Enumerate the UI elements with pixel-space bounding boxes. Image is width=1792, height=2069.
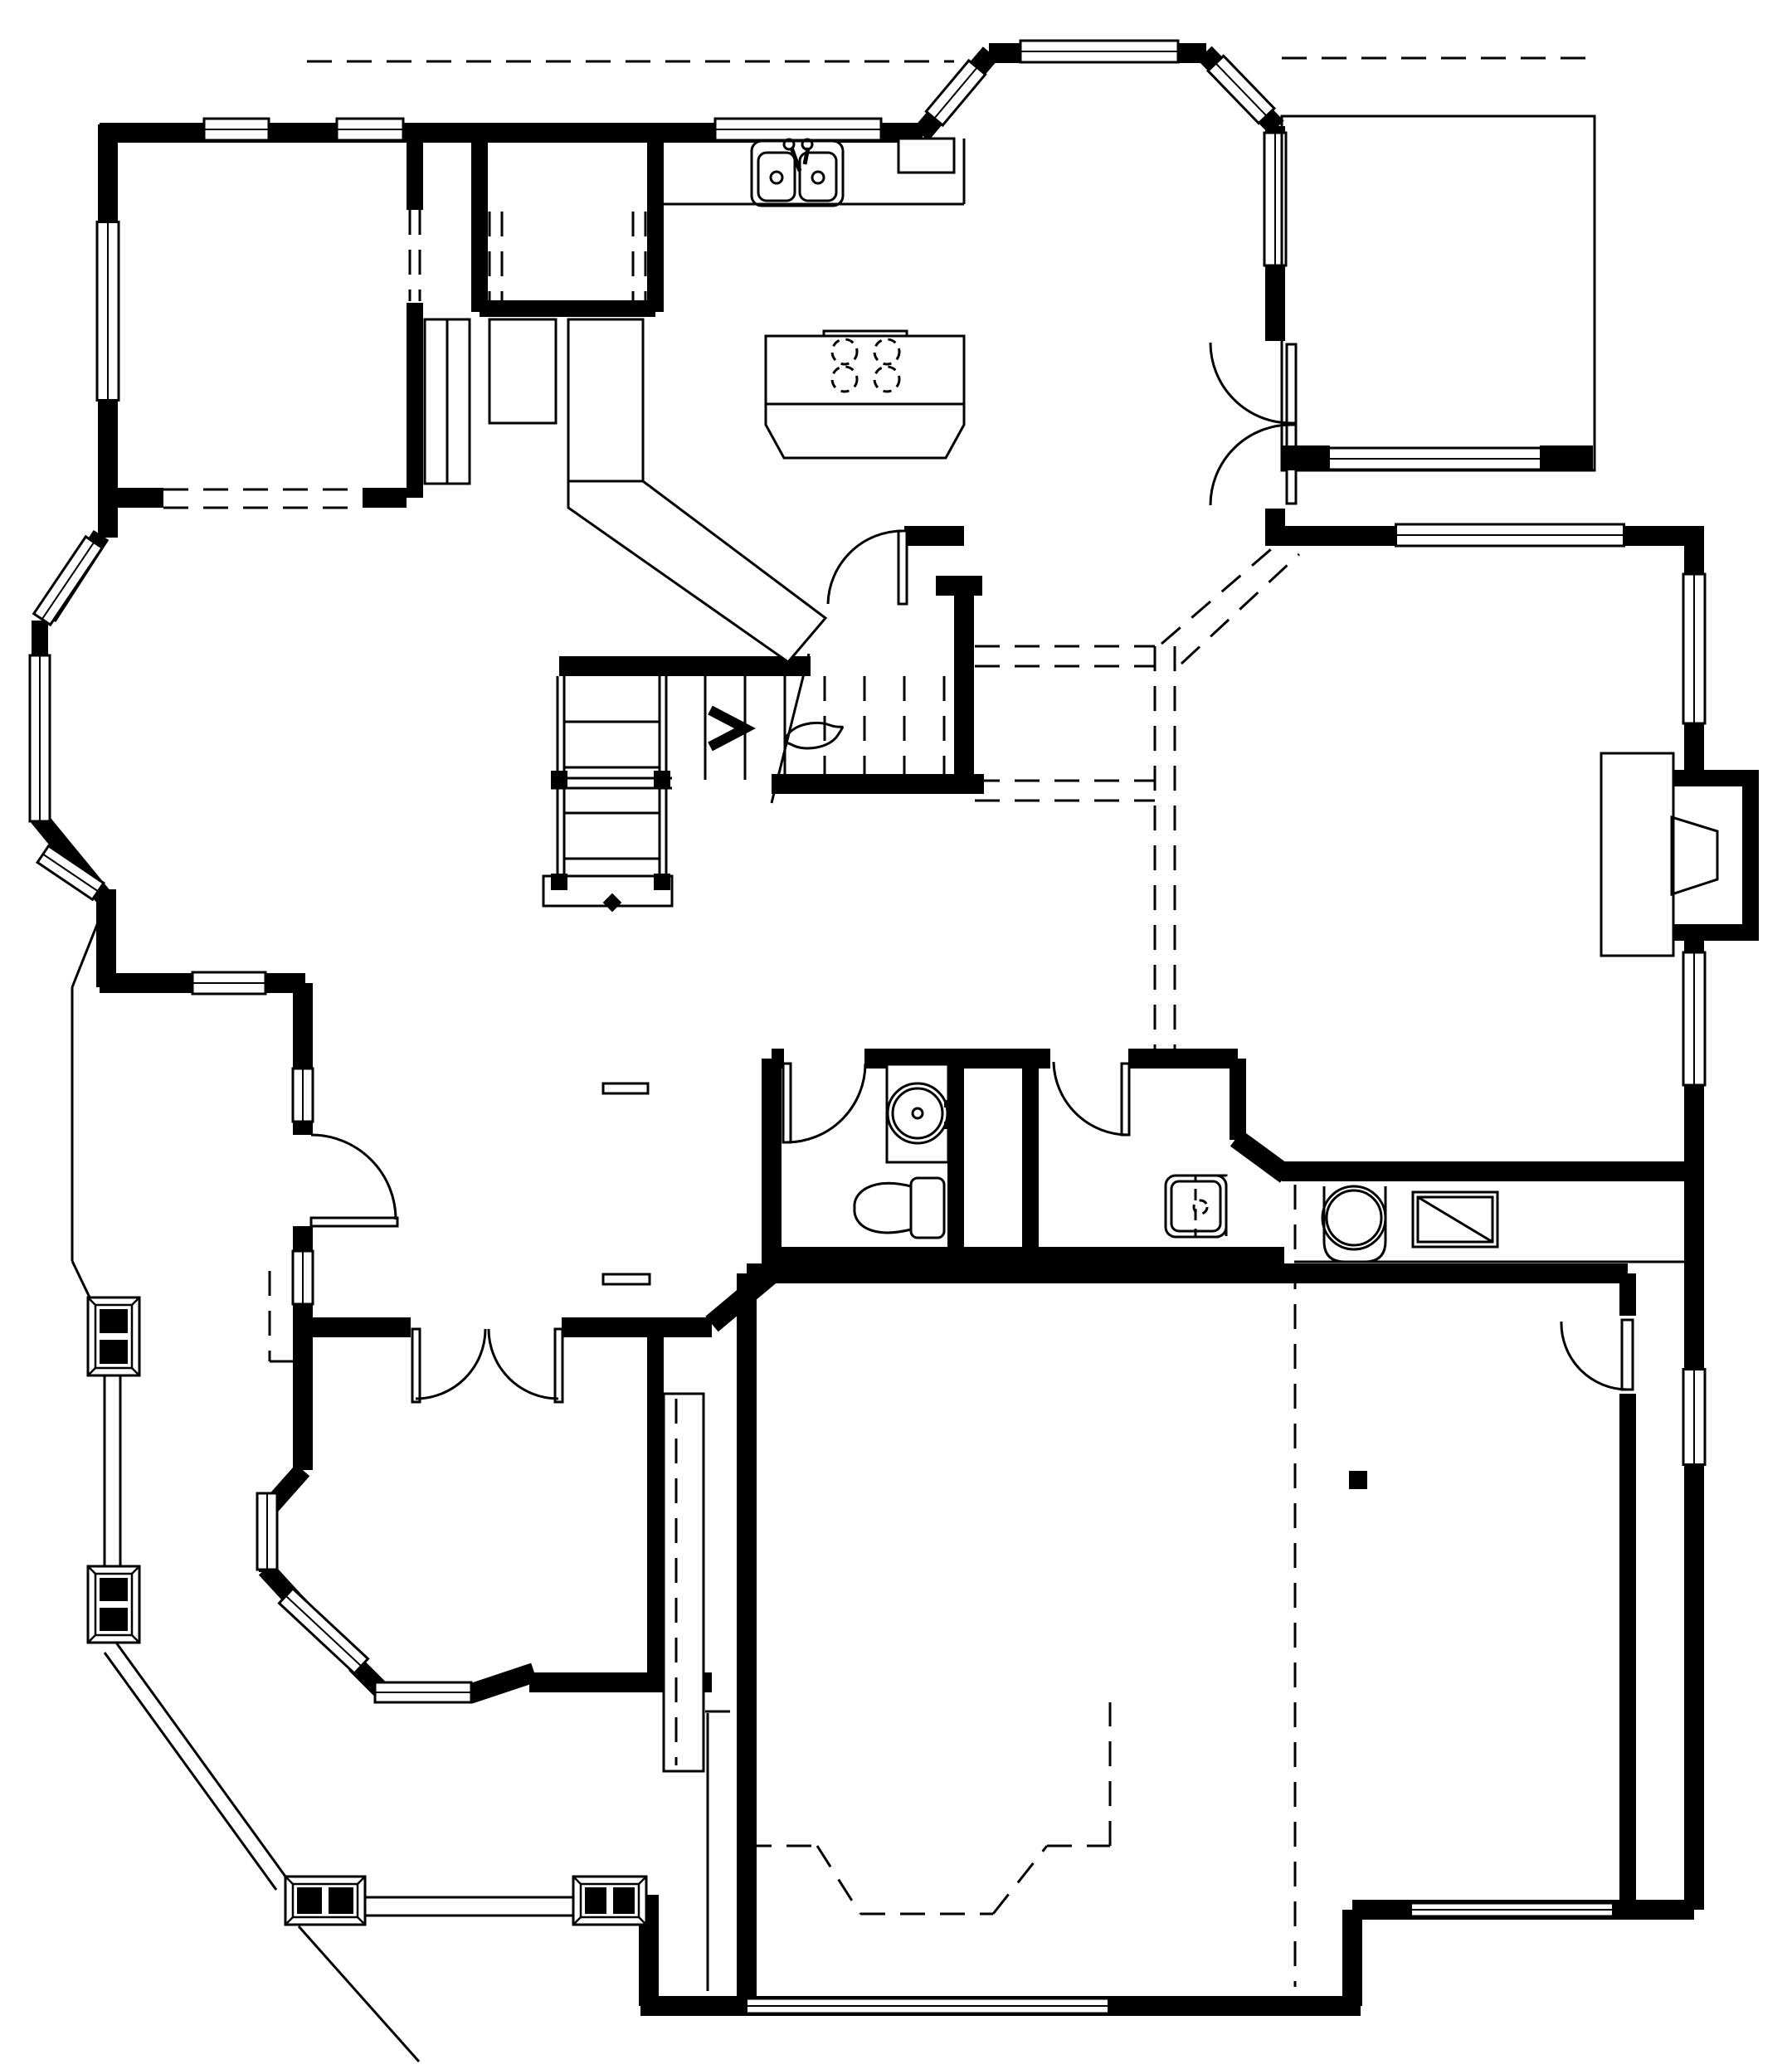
column-post [100, 1578, 128, 1601]
door-opening [163, 488, 363, 508]
basin-faucet [944, 1100, 954, 1108]
floor-plan-drawing [0, 0, 1792, 2069]
door-opening [405, 210, 425, 303]
window [1683, 952, 1705, 1085]
slider-jamb [1612, 1900, 1650, 1920]
window [293, 1069, 313, 1122]
porch-column [285, 1877, 365, 1925]
door-opening [293, 1135, 313, 1226]
door-leaf [555, 1329, 562, 1402]
column-post [585, 1887, 606, 1914]
sink-basin-left [758, 153, 795, 201]
kitchen-island [766, 336, 964, 458]
column-post [100, 1608, 128, 1631]
window [1410, 1903, 1614, 1916]
background [0, 0, 1792, 2069]
bedroom-closet [664, 1394, 704, 1771]
door-leaf [1287, 344, 1296, 423]
column-post [100, 1340, 128, 1364]
window [257, 1493, 277, 1570]
door-opening [784, 1049, 864, 1069]
door-leaf [898, 531, 907, 604]
window [1683, 1370, 1705, 1465]
window [192, 972, 265, 994]
door-leaf [311, 1218, 397, 1226]
window [337, 119, 403, 140]
garage-post [1349, 1471, 1367, 1489]
porch-column [88, 1566, 139, 1643]
porch-wall-end [1540, 445, 1593, 470]
hearth [1601, 753, 1673, 956]
window [1020, 41, 1178, 62]
window [97, 222, 119, 401]
slider-jamb [1371, 1900, 1412, 1920]
vanity-counter [887, 1064, 948, 1162]
fireplace-inner [1672, 786, 1742, 924]
toilet-tank [911, 1178, 944, 1238]
newel-post [551, 874, 567, 890]
column-post [100, 1309, 128, 1333]
window [293, 1251, 313, 1304]
window [715, 119, 881, 140]
window [204, 119, 269, 140]
door-leaf [783, 1064, 791, 1142]
column-post [329, 1887, 353, 1914]
wall-ledge-upper [603, 1083, 648, 1093]
newel-post [654, 771, 670, 787]
newel-post [654, 874, 670, 890]
column-post [297, 1887, 322, 1914]
wall-ledge-lower [603, 1274, 650, 1284]
window [1327, 448, 1541, 470]
pantry-cabinet [489, 319, 556, 423]
porch-column [573, 1877, 646, 1925]
porch-wall-end [1282, 445, 1330, 470]
door-leaf [1122, 1064, 1129, 1135]
window [1396, 524, 1624, 546]
column-post [613, 1887, 635, 1914]
window [30, 655, 50, 821]
window [747, 1998, 1109, 2013]
floor-plan [0, 0, 1792, 2069]
kitchen-counter-left [568, 319, 643, 481]
window [1683, 574, 1705, 723]
window [375, 1682, 471, 1702]
door-leaf [412, 1329, 420, 1402]
door-leaf [1622, 1320, 1633, 1390]
porch-column [88, 1297, 139, 1375]
basin-faucet [944, 1122, 954, 1129]
newel-post [551, 771, 567, 787]
door-opening [1050, 1049, 1128, 1069]
dishwasher [898, 139, 954, 173]
